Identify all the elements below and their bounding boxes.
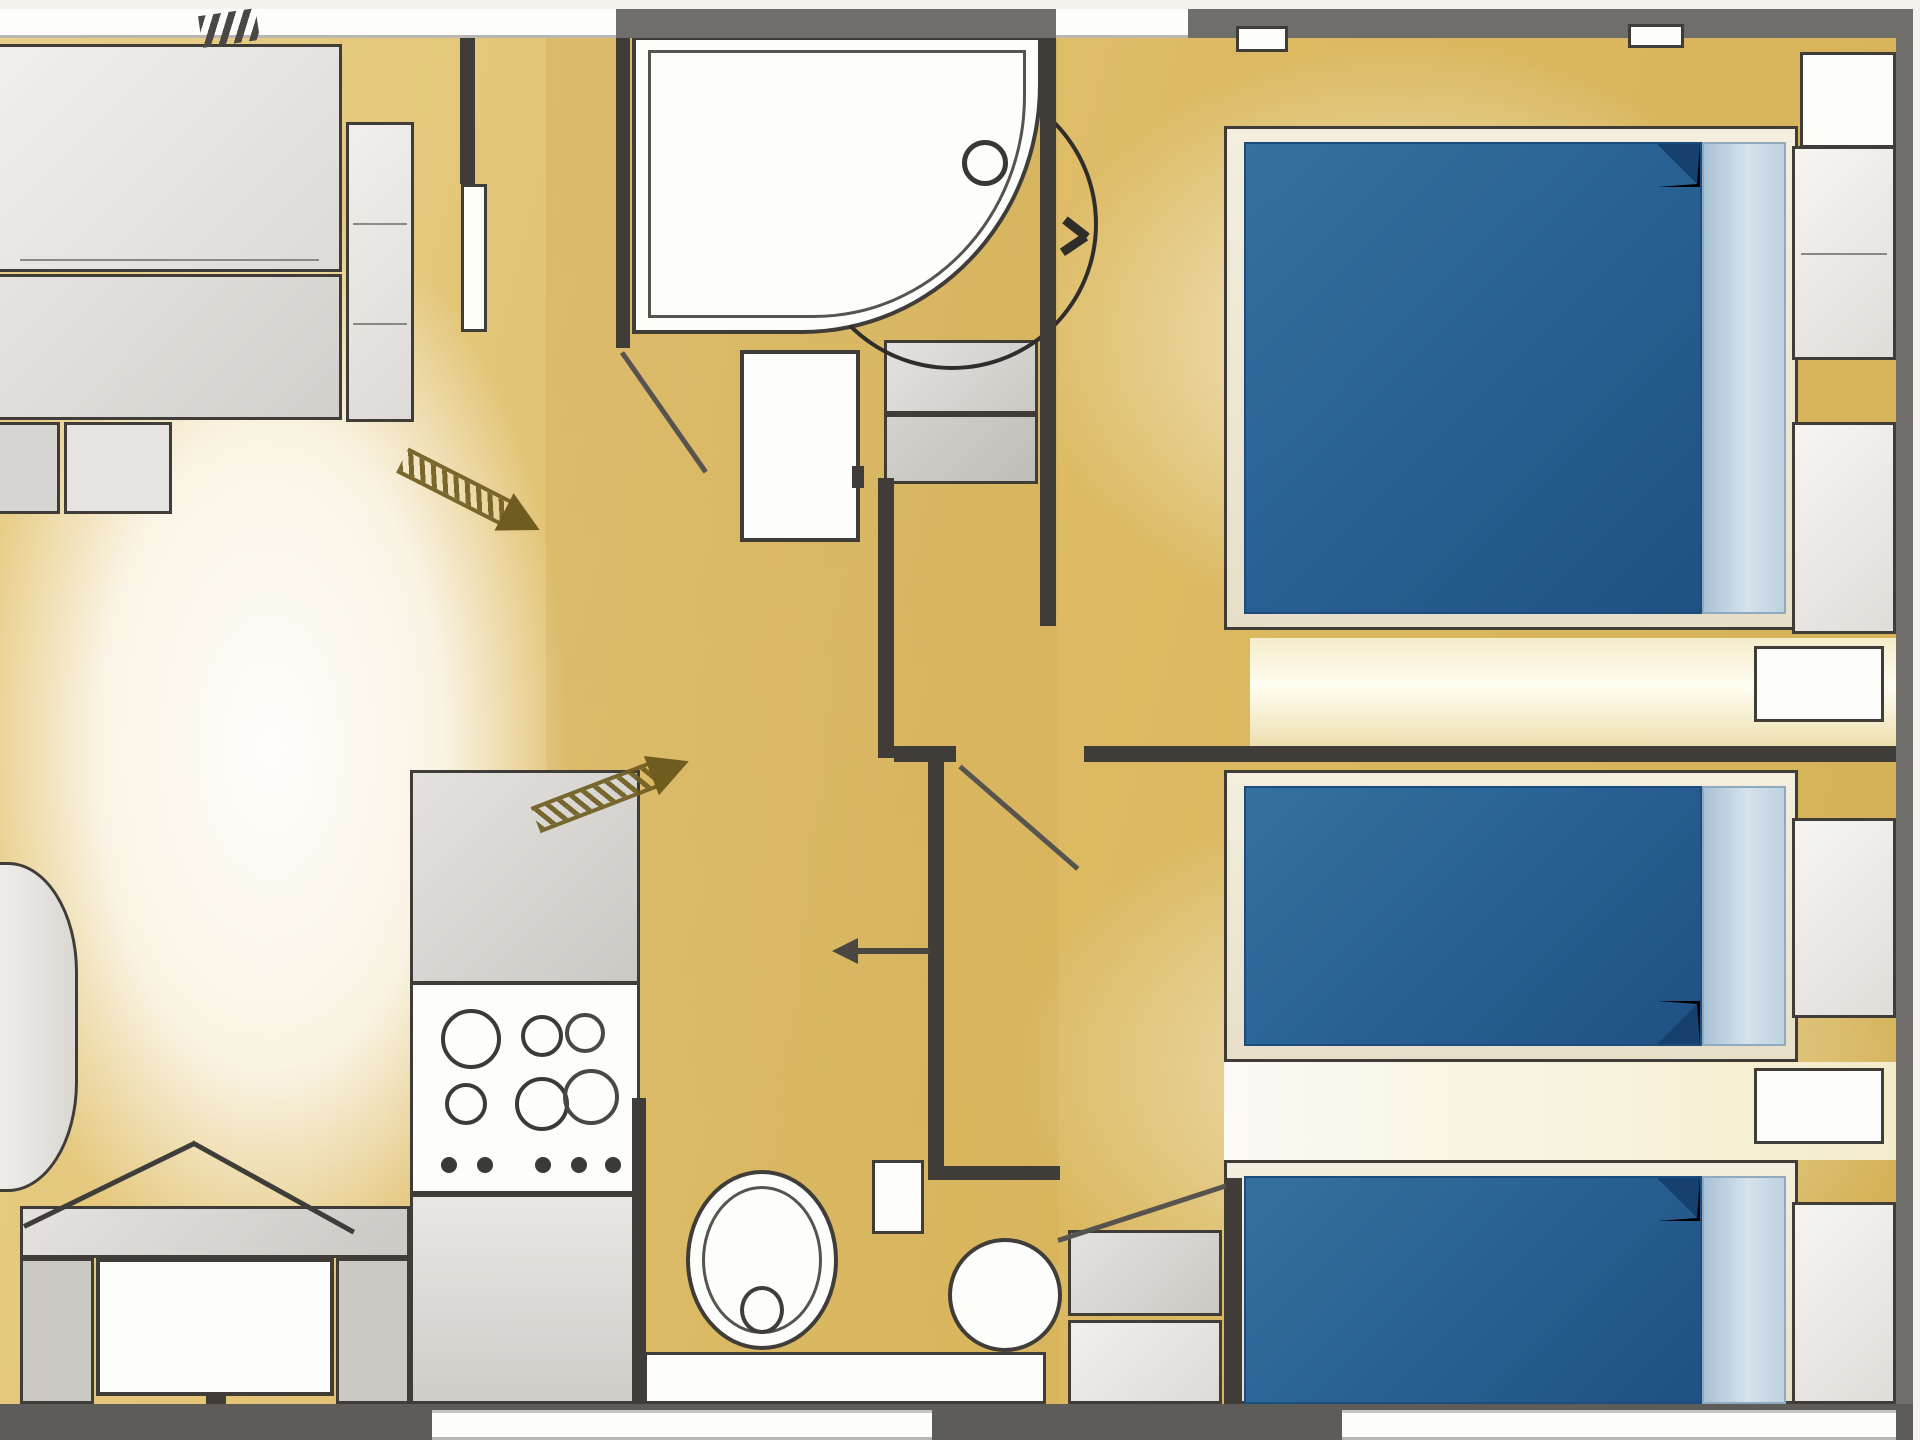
sofa-bed-back bbox=[0, 44, 342, 272]
hob-burner-medium bbox=[515, 1077, 569, 1131]
bedroom2-door-leaf bbox=[958, 765, 1079, 871]
wardrobe-tall bbox=[346, 122, 414, 422]
window-top-left bbox=[0, 6, 616, 38]
top-wall-outer-edge bbox=[0, 0, 1920, 9]
hob-knob-2 bbox=[477, 1157, 493, 1173]
window-bottom-bedroom bbox=[1342, 1410, 1896, 1440]
window-top-middle bbox=[1056, 6, 1188, 38]
bedroom1-wall-cabinet bbox=[1800, 52, 1896, 148]
basin-shelf-lower bbox=[1068, 1320, 1222, 1404]
hob-knob-5 bbox=[605, 1157, 621, 1173]
double-bed-pillow bbox=[1702, 142, 1786, 614]
entry-arrow bbox=[395, 448, 409, 475]
vanity-handle bbox=[852, 466, 864, 488]
single-bed-2-mattress bbox=[1244, 1176, 1702, 1404]
sink-bowl-small bbox=[565, 1013, 605, 1053]
washbasin bbox=[948, 1238, 1062, 1352]
wc-door-leaf bbox=[872, 1160, 924, 1234]
hall-wall-lower bbox=[928, 762, 944, 1180]
sofa-bed-seat bbox=[0, 274, 342, 420]
right-wall-outer-edge bbox=[1913, 0, 1920, 1440]
hob-knob-3 bbox=[535, 1157, 551, 1173]
armchair bbox=[0, 862, 78, 1192]
single-bed-1-mattress bbox=[1244, 786, 1702, 1046]
top-wall-vent bbox=[1236, 26, 1288, 52]
wc-stub-wall bbox=[928, 1166, 1060, 1180]
wc-arrow-head bbox=[832, 938, 858, 964]
bathroom-right-wall bbox=[1040, 36, 1056, 626]
basin-nook-wall bbox=[1226, 1178, 1242, 1404]
dresser-box bbox=[1754, 646, 1884, 722]
bench-arm-left bbox=[20, 1258, 94, 1404]
hob-knob-1 bbox=[441, 1157, 457, 1173]
floor-plan bbox=[0, 0, 1920, 1440]
hob-knob-4 bbox=[571, 1157, 587, 1173]
hob-burner-large bbox=[441, 1009, 501, 1069]
bench-arm-right bbox=[336, 1258, 410, 1404]
bathroom-shelf-lower bbox=[884, 414, 1038, 484]
nightstand-2b bbox=[1792, 1202, 1896, 1404]
sink-bowl-large bbox=[563, 1069, 619, 1125]
double-bed-mattress bbox=[1244, 142, 1702, 614]
between-beds-box bbox=[1754, 1068, 1884, 1144]
table-leg-mark bbox=[206, 1394, 226, 1404]
bedroom-divider-wall bbox=[1084, 746, 1920, 762]
single-bed-2-pillow bbox=[1702, 1176, 1786, 1404]
single-bed-1-pillow bbox=[1702, 786, 1786, 1046]
wc-arrow-shaft bbox=[856, 948, 930, 954]
top-wall-vent-2 bbox=[1628, 24, 1684, 48]
duvet-fold bbox=[1657, 144, 1700, 187]
bathroom-left-wall bbox=[616, 36, 630, 348]
entry-door-leaf bbox=[461, 184, 487, 332]
hob-burner-small bbox=[521, 1015, 563, 1057]
kitchen-hob bbox=[410, 982, 640, 1194]
nightstand-1b bbox=[1792, 422, 1896, 634]
duvet-fold-2 bbox=[1657, 1001, 1700, 1044]
nightstand-2a bbox=[1792, 818, 1896, 1018]
wc-counter bbox=[644, 1352, 1046, 1404]
sofa-cushion-right bbox=[64, 422, 172, 514]
entry-wall bbox=[460, 18, 475, 184]
nightstand-1a bbox=[1792, 146, 1896, 360]
sofa-cushion-left bbox=[0, 422, 60, 514]
bedroom-divider-stub bbox=[894, 746, 956, 762]
hall-wall-upper bbox=[878, 478, 894, 758]
hob-burner-small-2 bbox=[445, 1083, 487, 1125]
curtain-mark bbox=[198, 8, 260, 48]
bathroom-door-swing bbox=[620, 351, 708, 473]
vanity-unit bbox=[740, 350, 860, 542]
kitchen-counter-bottom bbox=[410, 1194, 640, 1404]
basin-shelf-upper bbox=[1068, 1230, 1222, 1316]
dining-table bbox=[96, 1258, 334, 1396]
toilet-flush bbox=[740, 1286, 784, 1334]
wc-left-wall bbox=[632, 1098, 646, 1404]
window-bottom-living bbox=[432, 1410, 932, 1440]
duvet-fold-3 bbox=[1657, 1178, 1700, 1221]
